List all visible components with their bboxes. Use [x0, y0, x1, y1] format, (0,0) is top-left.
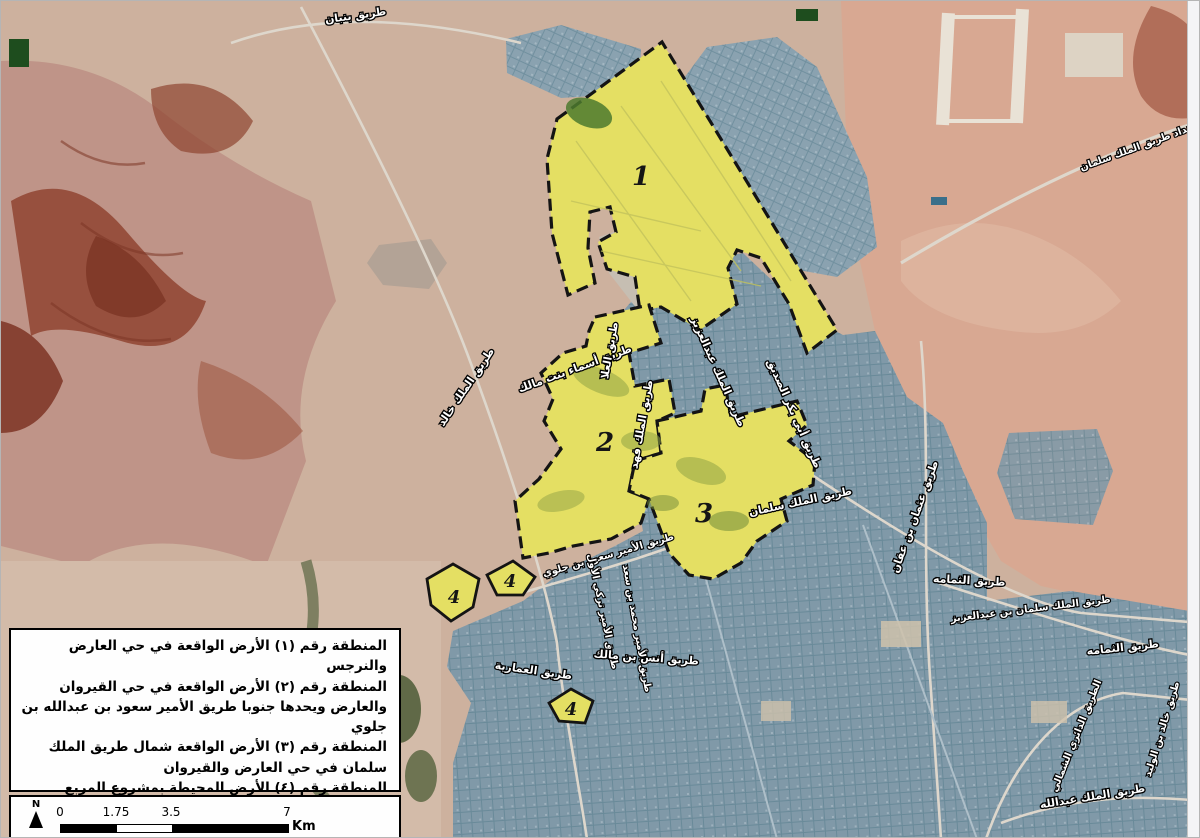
zone-label-3: 3: [695, 499, 713, 529]
legend-item-zone3: المنطقة رقم (٣) الأرض الواقعة شمال طريق …: [21, 737, 387, 778]
zone-label-4b: 4: [504, 571, 517, 592]
scale-tick-0: 0: [56, 805, 64, 819]
north-arrow-icon: [29, 811, 43, 828]
green-field-top: [796, 9, 818, 21]
zone-label-2: 2: [595, 428, 614, 458]
north-arrow: N: [25, 800, 47, 828]
legend-item-zone1: المنطقة رقم (١) الأرض الواقعة في حي العا…: [21, 636, 387, 677]
page-margin-strip: [1187, 1, 1200, 838]
scale-bar: [60, 824, 289, 833]
urban-east-cluster: [997, 429, 1113, 525]
pond: [931, 197, 947, 205]
green-field-left: [9, 39, 29, 67]
zone-label-1: 1: [632, 162, 650, 192]
legend-panel: المنطقة رقم (١) الأرض الواقعة في حي العا…: [9, 628, 401, 792]
legend-item-zone2: المنطقة رقم (٢) الأرض الواقعة في حي القي…: [21, 677, 387, 738]
north-label: N: [25, 800, 47, 810]
scale-tick-175: 1.75: [103, 805, 130, 819]
zone-label-4a: 4: [448, 587, 461, 608]
scale-tick-35: 3.5: [161, 805, 180, 819]
scale-unit: Km: [292, 819, 316, 834]
zone-label-4c: 4: [565, 699, 578, 720]
scale-panel: N 0 1.75 3.5 7 Km: [9, 795, 401, 838]
scale-tick-7: 7: [283, 805, 291, 819]
satellite-map-screenshot: 1 2 3 4 4 4 طريق بنبان امتداد طريق الملك…: [0, 0, 1200, 838]
